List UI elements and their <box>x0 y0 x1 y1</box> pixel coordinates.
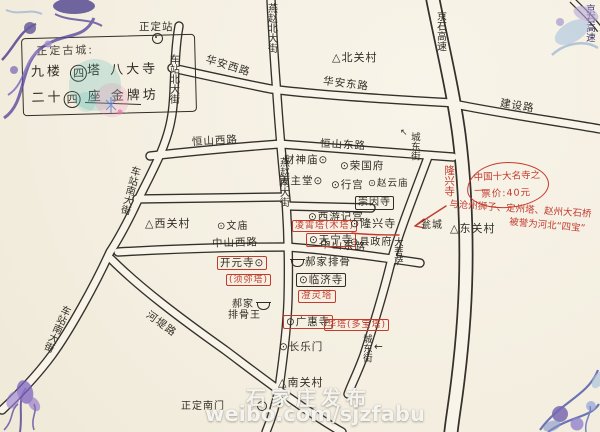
poi-county-government: ⊙县政府 <box>350 237 392 249</box>
poi-changlemen-gate: ⊙长乐门 <box>279 341 323 353</box>
village-dongguan: △东关村 <box>450 223 495 236</box>
road-label-jingshi-expressway-corner: 京石高速 <box>583 4 594 42</box>
station-marker-icon <box>152 33 163 44</box>
poi-wengcheng: 瓮城 <box>421 220 443 232</box>
pagoda-lingxiao: 凌霄塔(木塔) <box>292 220 357 232</box>
station-label: 正定站 <box>139 21 174 33</box>
road-label-yanzhao-north: 燕赵北大街 <box>265 3 277 53</box>
watermark-url: weibo.com/sjzfabu <box>205 402 425 426</box>
hand-drawn-map-canvas: 正定古城: 九楼 四塔 八大寺 二十四 座 金牌坊 正定站 车站北大街 车站南大… <box>0 0 600 432</box>
village-xiguan: △西关村 <box>145 218 190 231</box>
legend-line2: 九楼 四塔 八大寺 <box>31 58 159 83</box>
red-note-longxingsi-vertical: 隆兴寺 <box>443 165 455 197</box>
pagoda-chengling: 澄灵塔 <box>298 290 336 303</box>
road-label-chengdong-south: 城东街 <box>360 334 371 363</box>
road-label-chengdong-north: 城东街 <box>408 132 419 161</box>
poi-rongguofu: ⊙荣国府 <box>340 160 384 172</box>
poi-dapusa: 大菩萨 <box>391 237 402 266</box>
circled-four: 四 <box>70 65 87 82</box>
bubble-line2: 票价:40元 <box>481 184 531 200</box>
road-label-hengshan-west: 恒山西路 <box>192 134 239 148</box>
road-label-jingshi-expressway: 京石高速 <box>434 11 446 51</box>
poi-tianzhutang-church: 天主堂⊙ <box>279 175 323 187</box>
circled-four: 四 <box>63 91 80 108</box>
poi-longxingsi: ⊙隆兴寺 <box>350 218 396 231</box>
poi-linjisi: ⊙临济寺 <box>296 273 346 287</box>
poi-zhaoyun-temple: ⊙赵云庙 <box>368 179 408 190</box>
legend-line1: 正定古城: <box>36 41 94 59</box>
pagoda-xumi: (须弥塔) <box>226 274 271 286</box>
restaurant-haojia-wang-line2: 排骨王 <box>228 310 261 322</box>
legend-line3: 二十四 座 金牌坊 <box>31 84 159 109</box>
road-label-chezhan-north: 车站北大街 <box>167 54 179 104</box>
village-beiguan: △北关村 <box>332 52 377 65</box>
arrow-left-icon: ← <box>374 341 384 353</box>
restaurant-haojia-paigu: 郝家排骨 <box>305 256 351 268</box>
poi-caishenmiao: 财神庙⊙ <box>284 154 328 166</box>
pagoda-huata: 华塔(多宝塔) <box>324 319 389 331</box>
poi-wenmiao: ⊙文庙 <box>217 221 248 233</box>
poi-xinggong: ⊙行宫 <box>331 179 364 191</box>
road-label-hengshan-east: 恒山东路 <box>320 138 367 152</box>
poi-chongyinsi: 崇因寺 <box>355 196 394 210</box>
road-label-zhongshan-west: 中山西路 <box>212 236 258 250</box>
red-underline-longxingsi <box>352 233 399 235</box>
restaurant-haojia-wang-line1: 郝家 <box>232 299 254 311</box>
poi-kaiyuansi: 开元寺⊙ <box>217 256 267 270</box>
poi-tianningsi: ⊙天宁寺 <box>306 233 356 247</box>
